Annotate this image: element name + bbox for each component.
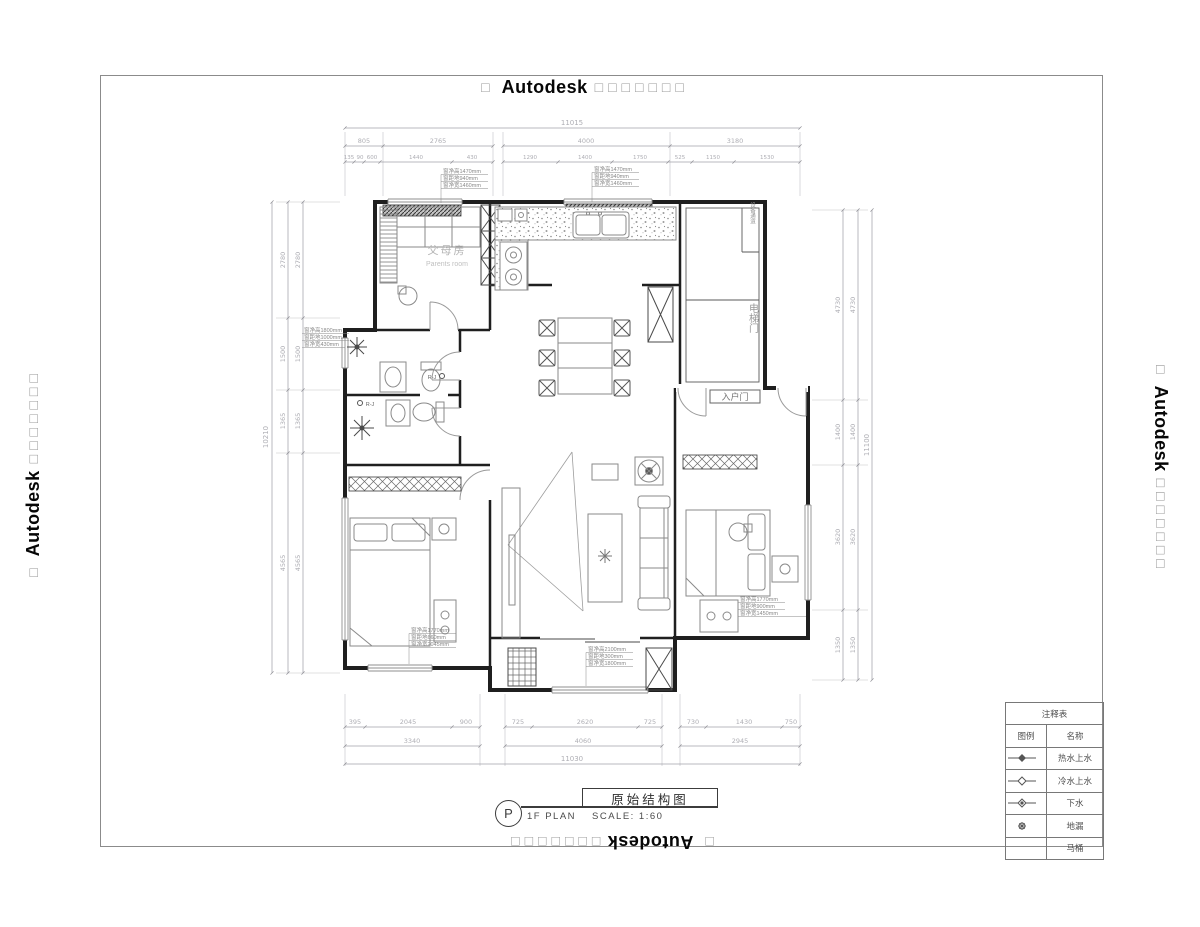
bed-1 [350, 518, 430, 646]
svg-text:窗距地660mm: 窗距地660mm [411, 633, 446, 641]
scale-label: SCALE: 1:60 [592, 811, 663, 822]
legend-label: 热水上水 [1047, 747, 1104, 770]
dining-table [558, 318, 612, 394]
svg-text:3180: 3180 [727, 137, 744, 145]
svg-text:窗距地900mm: 窗距地900mm [740, 602, 775, 610]
svg-text:窗净高2100mm: 窗净高2100mm [588, 645, 626, 653]
svg-text:窗距地1000mm: 窗距地1000mm [304, 333, 342, 341]
svg-text:1400: 1400 [849, 424, 857, 441]
utility-shaft-label: 设备通道 [749, 201, 756, 226]
legend-label: 下水 [1047, 792, 1104, 815]
svg-text:3620: 3620 [834, 529, 842, 546]
svg-text:1150: 1150 [706, 155, 720, 161]
wardrobe [380, 207, 397, 283]
nightstand-1 [432, 518, 456, 540]
svg-text:4565: 4565 [294, 555, 302, 572]
legend-row: 马桶 [1006, 837, 1104, 860]
legend-col-symbol: 图例 [1006, 725, 1047, 748]
plan-bubble-letter: P [504, 806, 513, 821]
cold-water-valve-icon [1006, 770, 1047, 793]
svg-text:1440: 1440 [409, 155, 423, 161]
svg-text:2765: 2765 [430, 137, 447, 145]
plant [598, 549, 612, 563]
tap-label: R-J [428, 375, 437, 381]
annotation-win-a: 窗净高1470mm窗距地940mm窗净宽1460mm [441, 167, 488, 203]
svg-text:1350: 1350 [834, 637, 842, 654]
dresser-2 [700, 600, 738, 632]
svg-text:725: 725 [512, 718, 524, 726]
svg-text:730: 730 [687, 718, 699, 726]
svg-text:窗净高1770mm: 窗净高1770mm [411, 626, 449, 634]
legend-row: 冷水上水 [1006, 770, 1104, 793]
svg-text:窗净宽1460mm: 窗净宽1460mm [443, 181, 481, 189]
svg-text:4730: 4730 [834, 297, 842, 314]
bed-2 [686, 510, 770, 596]
svg-text:窗距地940mm: 窗距地940mm [594, 172, 629, 180]
svg-text:10210: 10210 [262, 426, 270, 448]
svg-text:4060: 4060 [575, 737, 592, 745]
svg-text:窗净高1800mm: 窗净高1800mm [304, 326, 342, 334]
svg-text:135: 135 [344, 155, 355, 161]
drain-valve-icon [1006, 792, 1047, 815]
fridge [498, 209, 527, 221]
svg-text:1365: 1365 [294, 413, 302, 430]
svg-text:窗净宽430mm: 窗净宽430mm [304, 340, 339, 348]
coffee-table [588, 464, 622, 602]
svg-text:窗净宽2045mm: 窗净宽2045mm [411, 640, 449, 648]
floor-drain-star [350, 416, 374, 440]
svg-text:4730: 4730 [849, 297, 857, 314]
svg-text:2620: 2620 [577, 718, 594, 726]
svg-text:11015: 11015 [561, 119, 583, 127]
ceiling-lines [508, 452, 583, 611]
svg-text:1500: 1500 [279, 346, 287, 363]
svg-text:窗净高1770mm: 窗净高1770mm [740, 595, 778, 603]
svg-text:525: 525 [675, 155, 686, 161]
entry-door-tag: 入户门 [710, 390, 760, 403]
svg-text:1365: 1365 [279, 413, 287, 430]
legend-row: 下水 [1006, 792, 1104, 815]
svg-text:2780: 2780 [294, 252, 302, 269]
furniture [347, 205, 798, 646]
drawing-title: 原始结构图 [582, 788, 718, 808]
elevator-shaft [686, 208, 759, 382]
armchair [398, 286, 417, 305]
parents-room-label-en: Parents room [426, 261, 468, 268]
svg-text:1530: 1530 [760, 155, 774, 161]
cooktop [500, 242, 527, 290]
svg-text:11100: 11100 [863, 434, 871, 456]
entry-door-label: 入户门 [721, 391, 748, 402]
svg-text:窗净高1470mm: 窗净高1470mm [443, 167, 481, 175]
svg-text:1400: 1400 [578, 155, 592, 161]
svg-text:805: 805 [358, 137, 370, 145]
svg-text:1400: 1400 [834, 424, 842, 441]
toilet-lower [413, 402, 444, 422]
svg-text:1350: 1350 [849, 637, 857, 654]
floor-drain-star [347, 337, 367, 357]
svg-text:窗净高1470mm: 窗净高1470mm [594, 165, 632, 173]
tv-cabinet [502, 488, 520, 638]
svg-text:430: 430 [467, 155, 478, 161]
svg-text:2045: 2045 [400, 718, 417, 726]
svg-text:窗距地300mm: 窗距地300mm [588, 652, 623, 660]
svg-text:395: 395 [349, 718, 361, 726]
annotation-win-b: 窗净高1470mm窗距地940mm窗净宽1460mm [592, 165, 639, 202]
parents-room-label-cn: 父母房 [428, 244, 467, 257]
svg-text:725: 725 [644, 718, 656, 726]
svg-text:4565: 4565 [279, 555, 287, 572]
hot-water-valve-icon [1006, 747, 1047, 770]
svg-text:1750: 1750 [633, 155, 647, 161]
legend-label: 冷水上水 [1047, 770, 1104, 793]
cad-floorplan-screenshot: { "watermark": { "prefix": "□", "brand":… [0, 0, 1200, 927]
nightstand-2 [772, 556, 798, 582]
annotation-win-e: 窗净高2100mm窗距地300mm窗净宽1800mm [586, 645, 633, 686]
sliding-door [540, 639, 640, 642]
floor-drain-icon [1006, 815, 1047, 838]
svg-text:11030: 11030 [561, 755, 583, 763]
svg-text:1430: 1430 [736, 718, 753, 726]
svg-text:2780: 2780 [279, 252, 287, 269]
svg-text:窗距地940mm: 窗距地940mm [443, 174, 478, 182]
svg-text:90: 90 [357, 155, 364, 161]
svg-text:900: 900 [460, 718, 472, 726]
kitchen-sink [573, 212, 629, 238]
svg-text:1290: 1290 [523, 155, 537, 161]
vanity-lower [386, 400, 410, 426]
vanity-upper [380, 362, 406, 392]
legend-table: 注释表 图例 名称 热水上水 冷水上水 下水 地漏 马桶 [1005, 702, 1104, 860]
svg-text:1500: 1500 [294, 346, 302, 363]
legend-col-name: 名称 [1047, 725, 1104, 748]
water-heater [635, 457, 663, 485]
sofa [638, 496, 670, 610]
legend-row: 热水上水 [1006, 747, 1104, 770]
svg-text:600: 600 [367, 155, 378, 161]
legend-header: 注释表 [1006, 703, 1104, 725]
svg-text:750: 750 [785, 718, 797, 726]
svg-text:3340: 3340 [404, 737, 421, 745]
plan-bubble: P [495, 800, 522, 827]
plan-label: 1F PLAN [527, 811, 576, 822]
svg-text:窗净宽1460mm: 窗净宽1460mm [594, 179, 632, 187]
svg-text:3620: 3620 [849, 529, 857, 546]
elevator-door-label: 电梯门 [747, 302, 759, 334]
svg-text:窗净宽1450mm: 窗净宽1450mm [740, 609, 778, 617]
svg-text:窗净宽1800mm: 窗净宽1800mm [588, 659, 626, 667]
legend-label: 地漏 [1047, 815, 1104, 838]
annotation-win-f: 窗净高1770mm窗距地900mm窗净宽1450mm [738, 595, 806, 617]
toilet-symbol-empty [1006, 837, 1047, 860]
svg-text:4000: 4000 [578, 137, 595, 145]
legend-row: 地漏 [1006, 815, 1104, 838]
tap-label: R-J [366, 402, 375, 408]
svg-text:2945: 2945 [732, 737, 749, 745]
legend-label: 马桶 [1047, 837, 1104, 860]
